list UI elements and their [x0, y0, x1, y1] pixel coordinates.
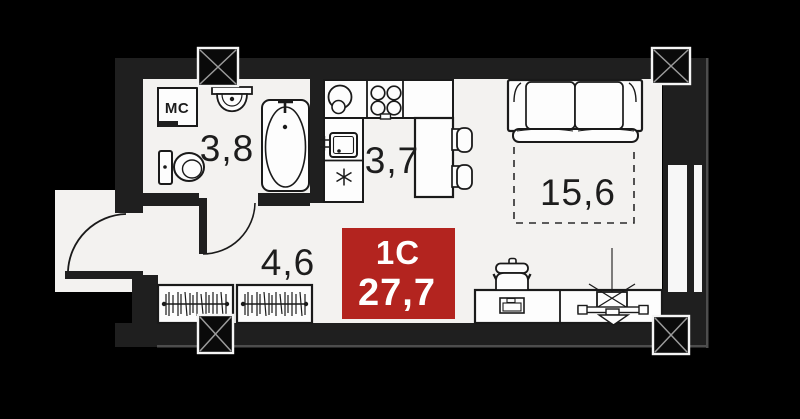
structural-column: [652, 48, 690, 84]
unit-type-label: 1С: [376, 234, 420, 271]
floorplan-canvas: МС: [0, 0, 800, 419]
kitchen-area-label: 3,7: [365, 140, 419, 181]
structural-column: [198, 315, 233, 353]
bathroom-area-label: 3,8: [200, 128, 254, 169]
dining-table: [415, 118, 453, 197]
sofa: [508, 80, 642, 142]
total-area-label: 27,7: [358, 272, 436, 314]
wall-edge-right: [706, 58, 709, 348]
structural-column: [653, 316, 689, 354]
computer-icon: [500, 298, 524, 313]
hallway-area-label: 4,6: [261, 242, 315, 283]
area-badge: 1С 27,7: [342, 228, 455, 319]
washing-machine-label: МС: [165, 100, 189, 117]
bathtub-icon: [262, 100, 309, 191]
living-room-area-label: 15,6: [540, 172, 616, 213]
floorplan-image: МС: [0, 0, 800, 419]
window: [668, 165, 702, 292]
wall-below-entrance: [132, 275, 158, 347]
toilet-icon: [159, 151, 204, 184]
chair-icon: [452, 128, 472, 152]
chair-icon: [452, 165, 472, 189]
structural-column: [198, 48, 238, 86]
desk-chair-icon: [494, 259, 531, 291]
wall-edge-bottom: [157, 345, 708, 348]
wardrobe: [237, 285, 312, 323]
